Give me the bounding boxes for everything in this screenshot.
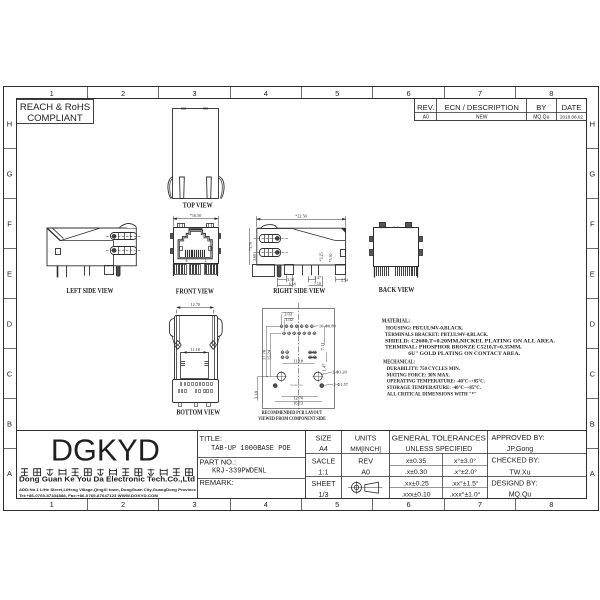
svg-text:.xxx±0.10: .xxx±0.10	[401, 492, 430, 499]
svg-text:BY: BY	[536, 103, 546, 112]
svg-text:VIEWED FROM COMPONENT SIDE: VIEWED FROM COMPONENT SIDE	[258, 416, 326, 422]
svg-text:B: B	[7, 419, 12, 428]
svg-text:MM[INCH]: MM[INCH]	[350, 446, 381, 453]
svg-text:LEFT SIDE VIEW: LEFT SIDE VIEW	[66, 287, 114, 295]
svg-text:7.11: 7.11	[320, 343, 325, 351]
svg-text:STORAGE TEMPERATURE: -40°C~+85: STORAGE TEMPERATURE: -40°C~+85°C.	[387, 384, 482, 391]
svg-text:3: 3	[192, 500, 196, 509]
svg-text:GENERAL TOLERANCES: GENERAL TOLERANCES	[392, 435, 486, 442]
svg-text:REACH & RoHS: REACH & RoHS	[20, 102, 90, 113]
svg-text:DGKYD: DGKYD	[51, 434, 160, 468]
svg-text:H: H	[590, 120, 595, 129]
svg-text:TOP VIEW: TOP VIEW	[183, 202, 214, 210]
svg-text:Tel:+86-0769-87334888, Fax:+86: Tel:+86-0769-87334888, Fax:+86-0769-8764…	[19, 493, 159, 498]
svg-text:1:1: 1:1	[319, 468, 329, 477]
svg-text:*3.25: *3.25	[319, 253, 324, 262]
svg-text:6.68: 6.68	[289, 282, 296, 287]
svg-text:E: E	[7, 269, 12, 278]
svg-text:*3.30: *3.30	[328, 254, 333, 263]
svg-text:1: 1	[205, 259, 207, 263]
svg-text:MATING FORCE: 30N MAX.: MATING FORCE: 30N MAX.	[387, 372, 451, 378]
svg-text:NEW: NEW	[476, 114, 488, 120]
svg-text:2.54: 2.54	[341, 277, 348, 282]
svg-text:7: 7	[478, 500, 482, 509]
svg-text:SACLE: SACLE	[312, 456, 336, 465]
svg-text:F: F	[7, 220, 12, 229]
svg-text:2-Φ3.20: 2-Φ3.20	[332, 369, 347, 374]
svg-text:UNLESS SPECIFIED: UNLESS SPECIFIED	[405, 446, 472, 453]
svg-text:DESIGND BY:: DESIGND BY:	[492, 478, 538, 487]
svg-text:.xx±0.25: .xx±0.25	[403, 480, 429, 487]
svg-text:TERMINAL: PHOSPHOR BRONZE C521: TERMINAL: PHOSPHOR BRONZE C5210,T=0.35MM…	[385, 345, 522, 351]
svg-text:F: F	[590, 220, 595, 229]
svg-text:15.24: 15.24	[266, 349, 271, 360]
svg-text:5: 5	[335, 500, 339, 509]
svg-text:MATERIAL:: MATERIAL:	[382, 318, 410, 325]
svg-text:x±0.35: x±0.35	[406, 458, 427, 465]
svg-text:Dong Guan Ke You Da Electronic: Dong Guan Ke You Da Electronic Tech.Co.,…	[19, 477, 195, 484]
svg-text:2018.08.02: 2018.08.02	[560, 114, 583, 119]
svg-text:COMPLIANT: COMPLIANT	[27, 113, 83, 124]
svg-text:.xx°±1.5°: .xx°±1.5°	[451, 479, 479, 487]
svg-text:16.13: 16.13	[293, 401, 304, 406]
svg-text:BACK VIEW: BACK VIEW	[379, 286, 415, 294]
svg-text:8: 8	[549, 500, 553, 509]
svg-text:4: 4	[264, 89, 268, 98]
svg-text:Centerline: Centerline	[290, 383, 303, 387]
svg-text:TW.Xu: TW.Xu	[509, 469, 530, 476]
svg-text:5: 5	[335, 89, 339, 98]
svg-text:C: C	[590, 369, 596, 378]
svg-text:KRJ-339PWDENL: KRJ-339PWDENL	[212, 467, 267, 475]
svg-text:SIZE: SIZE	[316, 433, 332, 442]
svg-text:DATE: DATE	[562, 103, 582, 112]
svg-text:C: C	[7, 369, 13, 378]
svg-text:1: 1	[50, 500, 54, 509]
svg-text:REV: REV	[358, 456, 373, 465]
svg-text:APPROVED BY:: APPROVED BY:	[492, 433, 545, 442]
svg-text:1/3: 1/3	[319, 490, 329, 499]
svg-text:1.02: 1.02	[285, 317, 293, 322]
svg-text:ALL CRITICAL DIMENSIONS WITH ": ALL CRITICAL DIMENSIONS WITH "*"	[387, 391, 477, 397]
svg-text:FRONT VIEW: FRONT VIEW	[176, 288, 215, 296]
svg-text:B: B	[590, 419, 595, 428]
svg-text:10-Φ0.89: 10-Φ0.89	[319, 324, 337, 329]
svg-text:*3.70: *3.70	[248, 242, 253, 251]
svg-text:1.47: 1.47	[314, 275, 321, 280]
svg-text:A4: A4	[319, 444, 328, 453]
svg-text:REV.: REV.	[417, 103, 434, 112]
svg-text:12.70: 12.70	[191, 302, 200, 307]
svg-text:2.03: 2.03	[284, 311, 293, 316]
svg-text:REMARK:: REMARK:	[200, 478, 234, 487]
svg-text:MQ.Qu: MQ.Qu	[509, 492, 532, 499]
svg-text:A0: A0	[423, 114, 429, 120]
svg-text:6: 6	[406, 89, 410, 98]
svg-text:PART NO.:: PART NO.:	[200, 457, 237, 466]
svg-text:SHIELD: C2680,T=0.20MM,NICKEL: SHIELD: C2680,T=0.20MM,NICKEL PLATING ON…	[385, 338, 556, 344]
svg-text:7.10: 7.10	[314, 281, 321, 286]
svg-text:11.18: 11.18	[293, 359, 304, 364]
svg-text:2-Φ1.57: 2-Φ1.57	[333, 382, 348, 387]
svg-text:2: 2	[121, 500, 125, 509]
svg-text:*16.50: *16.50	[190, 213, 202, 218]
svg-text:A: A	[590, 469, 595, 478]
svg-text:3: 3	[192, 89, 196, 98]
svg-text:*22.50: *22.50	[295, 214, 307, 219]
svg-text:CHECKED BY:: CHECKED BY:	[492, 456, 540, 465]
svg-text:D: D	[590, 319, 596, 328]
svg-text:.xxx°±1.0°: .xxx°±1.0°	[450, 491, 481, 499]
svg-text:H: H	[7, 120, 12, 129]
svg-text:D: D	[7, 319, 13, 328]
svg-text:TAB-UP 1000BASE POE: TAB-UP 1000BASE POE	[211, 445, 291, 453]
svg-text:A0: A0	[361, 468, 370, 477]
svg-text:2: 2	[121, 89, 125, 98]
svg-text:7: 7	[478, 89, 482, 98]
svg-text:1: 1	[50, 89, 54, 98]
svg-text:DURABILITY: 750 CYCLES MIN.: DURABILITY: 750 CYCLES MIN.	[387, 366, 461, 372]
svg-text:11.18: 11.18	[190, 347, 199, 352]
svg-text:TITLE:: TITLE:	[200, 434, 223, 443]
svg-text:4: 4	[264, 500, 268, 509]
svg-text:1.47: 1.47	[321, 363, 326, 372]
svg-text:HOUSING: PBT,UL94V-0,BLACK.: HOUSING: PBT,UL94V-0,BLACK.	[386, 326, 464, 332]
svg-text:ECN / DESCRIPTION: ECN / DESCRIPTION	[445, 103, 519, 112]
svg-text:RIGHT SIDE VIEW: RIGHT SIDE VIEW	[273, 287, 326, 295]
svg-text:TERMINALS BRACKET: PBT,UL94V-0: TERMINALS BRACKET: PBT,UL94V-0,BLACK.	[385, 332, 489, 338]
svg-text:3.18: 3.18	[253, 390, 258, 399]
svg-text:A: A	[7, 469, 12, 478]
svg-text:G: G	[589, 170, 595, 179]
svg-text:RECOMMENDED PCB LAYOUT: RECOMMENDED PCB LAYOUT	[262, 410, 323, 416]
svg-text:.x°±2.0°: .x°±2.0°	[453, 468, 477, 476]
svg-text:UNITS: UNITS	[355, 433, 377, 442]
svg-text:8: 8	[186, 259, 188, 263]
svg-text:3.60: 3.60	[252, 254, 257, 261]
svg-text:.x±0.30: .x±0.30	[405, 469, 427, 476]
svg-text:ADD:No.1 LiHe Street,LiHeng Vi: ADD:No.1 LiHe Street,LiHeng Village,Qing…	[19, 487, 197, 492]
svg-text:6: 6	[406, 500, 410, 509]
svg-text:SHEET: SHEET	[312, 479, 337, 488]
svg-text:G: G	[7, 170, 13, 179]
svg-text:MECHANICAL:: MECHANICAL:	[383, 358, 415, 365]
svg-text:8: 8	[549, 89, 553, 98]
svg-text:6U" GOLD PLATING ON CONTACT AR: 6U" GOLD PLATING ON CONTACT AREA.	[408, 351, 520, 357]
svg-text:MQ.Qu: MQ.Qu	[533, 114, 549, 120]
svg-text:x°±3.0°: x°±3.0°	[454, 457, 476, 465]
svg-text:OPERATING TEMPERATURE: -40°C~+: OPERATING TEMPERATURE: -40°C~+85°C.	[387, 378, 486, 385]
svg-text:JP.Gong: JP.Gong	[507, 446, 533, 453]
svg-text:E: E	[590, 269, 595, 278]
svg-text:BOTTOM VIEW: BOTTOM VIEW	[177, 408, 221, 417]
